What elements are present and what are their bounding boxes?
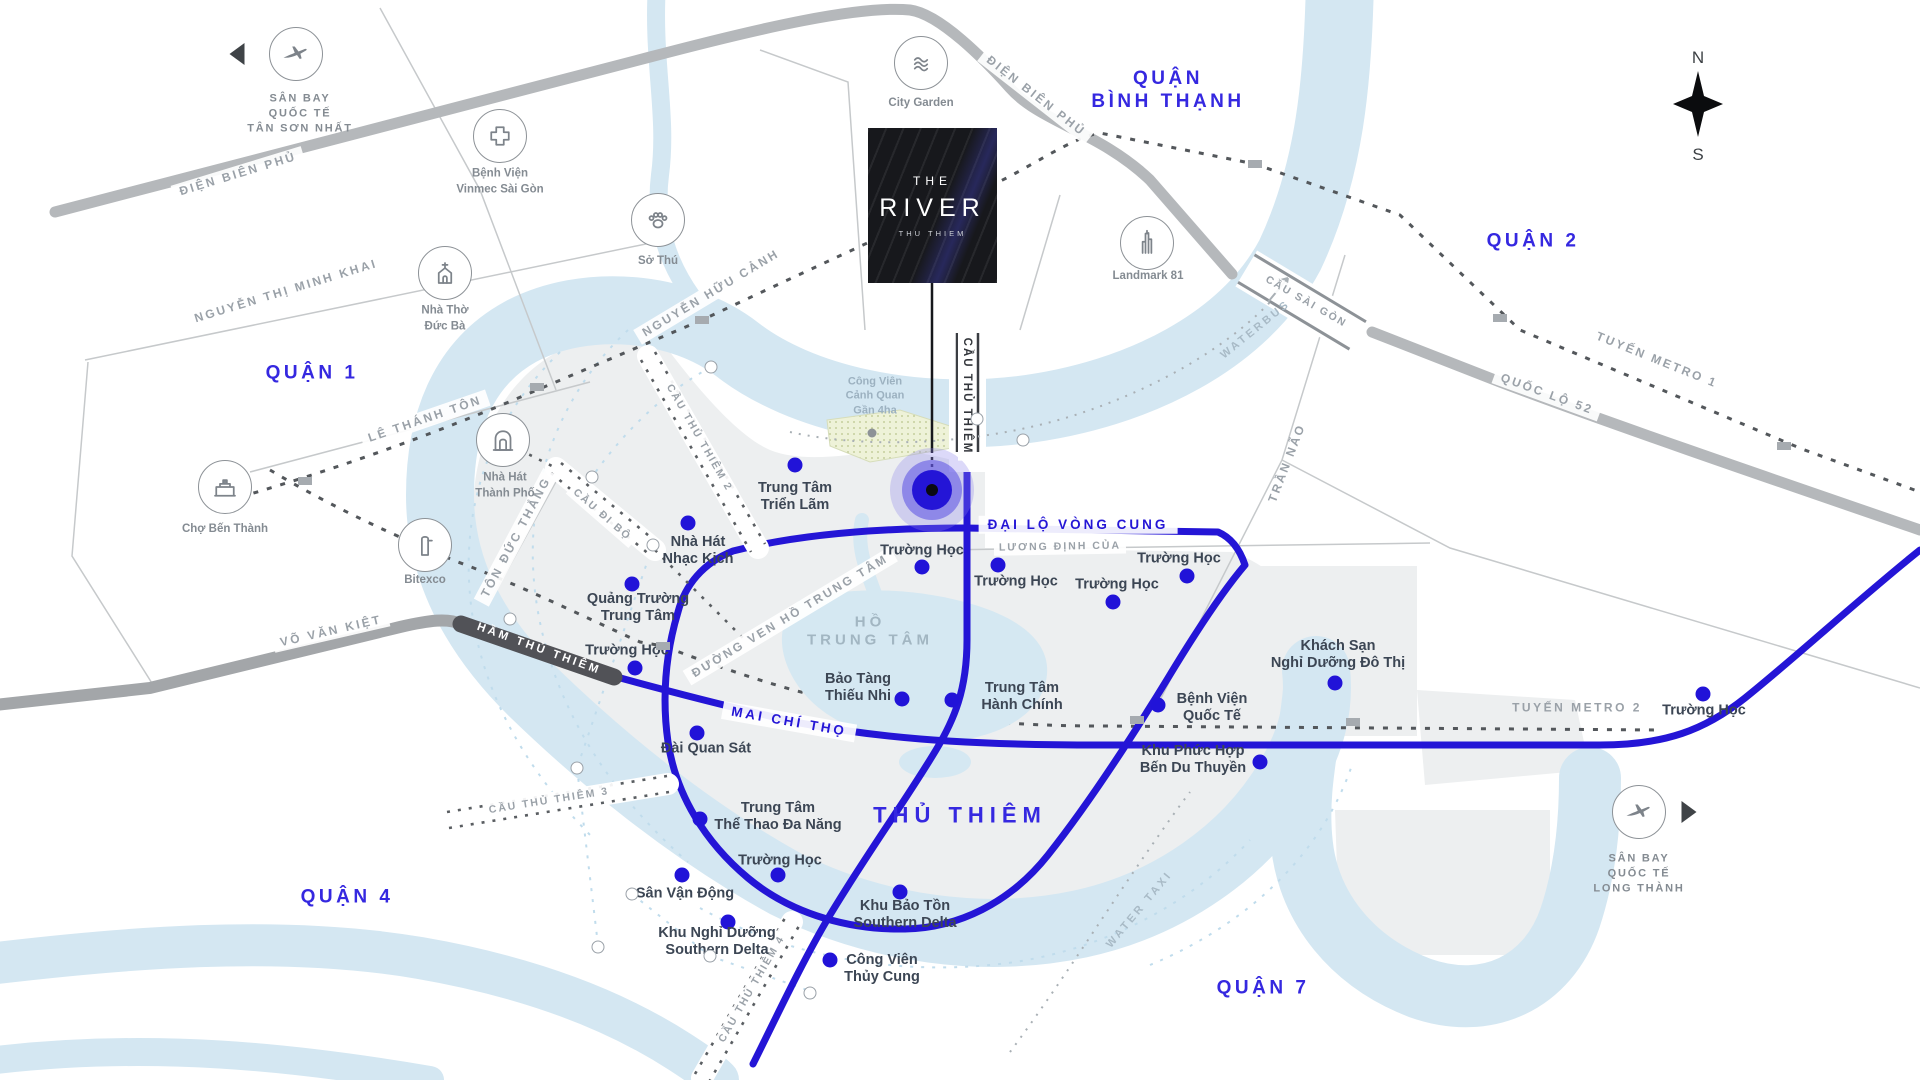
waves-landmark	[894, 36, 948, 90]
junction-node	[571, 762, 584, 775]
project-logo: THE RIVER THU THIEM	[868, 128, 997, 283]
poi-dot	[1328, 676, 1343, 691]
road-label: LƯƠNG ĐỊNH CỦA	[994, 538, 1126, 555]
poi-label: Trung TâmHành Chính	[981, 680, 1062, 714]
district-label: QUẬN 1	[266, 361, 359, 384]
landmark-label: Nhà HátThành Phố	[475, 470, 534, 501]
poi-label: Khu Bảo TồnSouthern Delta	[853, 898, 956, 932]
poi-label: Trường Học	[1075, 576, 1159, 593]
metro-station-marker	[1493, 314, 1507, 322]
poi-dot	[690, 726, 705, 741]
airplane-icon	[1624, 797, 1654, 827]
area-label: Công ViênCảnh QuanGần 4ha	[846, 375, 905, 418]
poi-dot	[915, 560, 930, 575]
poi-label: Trường Học	[1137, 550, 1221, 567]
poi-dot	[625, 577, 640, 592]
poi-label: Đài Quan Sát	[661, 740, 751, 757]
poi-dot	[771, 868, 786, 883]
poi-label: Trường Học	[880, 542, 964, 559]
waves-icon	[906, 48, 936, 78]
poi-dot	[895, 692, 910, 707]
paw-landmark	[631, 193, 685, 247]
junction-node	[586, 471, 599, 484]
road-label: TUYẾN METRO 2	[1505, 700, 1649, 717]
area-label: HỒTRUNG TÂM	[807, 614, 933, 651]
landmark-label: Bệnh ViệnVinmec Sài Gòn	[456, 166, 543, 197]
landmark-label: SÂN BAYQUỐC TẾLONG THÀNH	[1593, 852, 1684, 897]
church-landmark	[418, 246, 472, 300]
airplane-icon	[281, 39, 311, 69]
junction-node	[504, 613, 517, 626]
junction-node	[1017, 434, 1030, 447]
park-node	[868, 429, 877, 438]
skyscraper-landmark	[1120, 216, 1174, 270]
logo-thu-thiem: THU THIEM	[899, 229, 967, 238]
poi-label: Khu Phức HợpBến Du Thuyền	[1140, 743, 1246, 777]
junction-node	[804, 987, 817, 1000]
landmark-label: Chợ Bến Thành	[182, 522, 268, 538]
tower-icon	[410, 530, 440, 560]
district-label: QUẬN 4	[301, 885, 394, 908]
poi-label: Nhà HátNhạc Kịch	[663, 534, 734, 568]
logo-the: THE	[913, 174, 952, 188]
compass-star-icon	[1670, 68, 1726, 140]
junction-node	[592, 941, 605, 954]
poi-label: Trường Học	[1662, 702, 1746, 719]
landmark-label: SÂN BAYQUỐC TẾTÂN SƠN NHẤT	[247, 92, 353, 137]
poi-label: Công ViênThủy Cung	[844, 952, 920, 986]
poi-dot	[788, 458, 803, 473]
paw-icon	[643, 205, 673, 235]
poi-label: Trường Học	[974, 573, 1058, 590]
poi-dot	[991, 558, 1006, 573]
hospital-cross-icon	[485, 121, 515, 151]
vo-van-kiet-road	[0, 620, 461, 705]
compass-north-label: N	[1670, 48, 1726, 68]
metro-station-marker	[298, 477, 312, 485]
junction-node	[626, 888, 639, 901]
project-location-marker	[890, 448, 974, 532]
market-icon	[210, 472, 240, 502]
compass-rose: N S	[1670, 48, 1726, 165]
theater-landmark	[476, 413, 530, 467]
map-canvas: THE RIVER THU THIEM N S QUẬN 1QUẬN 2QUẬN…	[0, 0, 1920, 1080]
church-icon	[430, 258, 460, 288]
metro-station-marker	[1777, 442, 1791, 450]
metro-station-marker	[656, 642, 670, 650]
poi-label: Bệnh ViệnQuốc Tế	[1177, 691, 1248, 725]
landmark-label: Nhà ThờĐức Bà	[421, 303, 468, 334]
poi-dot	[681, 516, 696, 531]
junction-node	[971, 413, 984, 426]
hospital-cross-landmark	[473, 109, 527, 163]
junction-node	[705, 361, 718, 374]
poi-label: Sân Vận Động	[636, 885, 734, 902]
junction-node	[704, 950, 717, 963]
metro-station-marker	[530, 383, 544, 391]
area-label: THỦ THIÊM	[873, 803, 1047, 830]
poi-dot	[1151, 698, 1166, 713]
poi-label: Trung TâmThể Thao Đa Năng	[714, 800, 841, 834]
poi-dot	[1696, 687, 1711, 702]
poi-dot	[693, 812, 708, 827]
metro-station-marker	[1248, 160, 1262, 168]
poi-dot	[1106, 595, 1121, 610]
skyscraper-icon	[1132, 228, 1162, 258]
poi-dot	[823, 953, 838, 968]
theater-icon	[488, 425, 518, 455]
poi-label: Quảng TrườngTrung Tâm	[587, 591, 689, 625]
airplane-landmark	[269, 27, 323, 81]
poi-dot	[1180, 569, 1195, 584]
poi-label: Trung TâmTriển Lãm	[758, 480, 832, 514]
district-label: QUẬN 7	[1217, 976, 1310, 999]
poi-dot	[945, 693, 960, 708]
landmark-label: Bitexco	[404, 573, 446, 589]
poi-label: Khách SạnNghỉ Dưỡng Đô Thị	[1271, 638, 1405, 672]
direction-arrow-right-icon	[1682, 801, 1697, 823]
market-landmark	[198, 460, 252, 514]
metro-station-marker	[1130, 716, 1144, 724]
landmark-label: City Garden	[888, 96, 953, 112]
compass-south-label: S	[1670, 145, 1726, 165]
poi-dot	[628, 661, 643, 676]
poi-label: Bảo TàngThiếu Nhi	[825, 671, 891, 705]
metro-station-marker	[695, 316, 709, 324]
road-label: ĐẠI LỘ VÒNG CUNG	[979, 516, 1178, 534]
logo-river: RIVER	[879, 194, 985, 223]
poi-label: Trường Học	[738, 852, 822, 869]
landmark-label: Landmark 81	[1113, 269, 1184, 285]
landmark-label: Sở Thú	[638, 254, 678, 270]
poi-label: Khu Nghỉ DưỡngSouthern Delta	[658, 925, 775, 959]
poi-dot	[1253, 755, 1268, 770]
tower-landmark	[398, 518, 452, 572]
road-label: CẦU THỦ THIÊM	[958, 332, 976, 461]
airplane-landmark	[1612, 785, 1666, 839]
district-label: QUẬN 2	[1487, 229, 1580, 252]
metro-station-marker	[1346, 718, 1360, 726]
district-label: QUẬNBÌNH THẠNH	[1091, 67, 1244, 113]
poi-dot	[675, 868, 690, 883]
direction-arrow-left-icon	[230, 43, 245, 65]
junction-node	[647, 539, 660, 552]
